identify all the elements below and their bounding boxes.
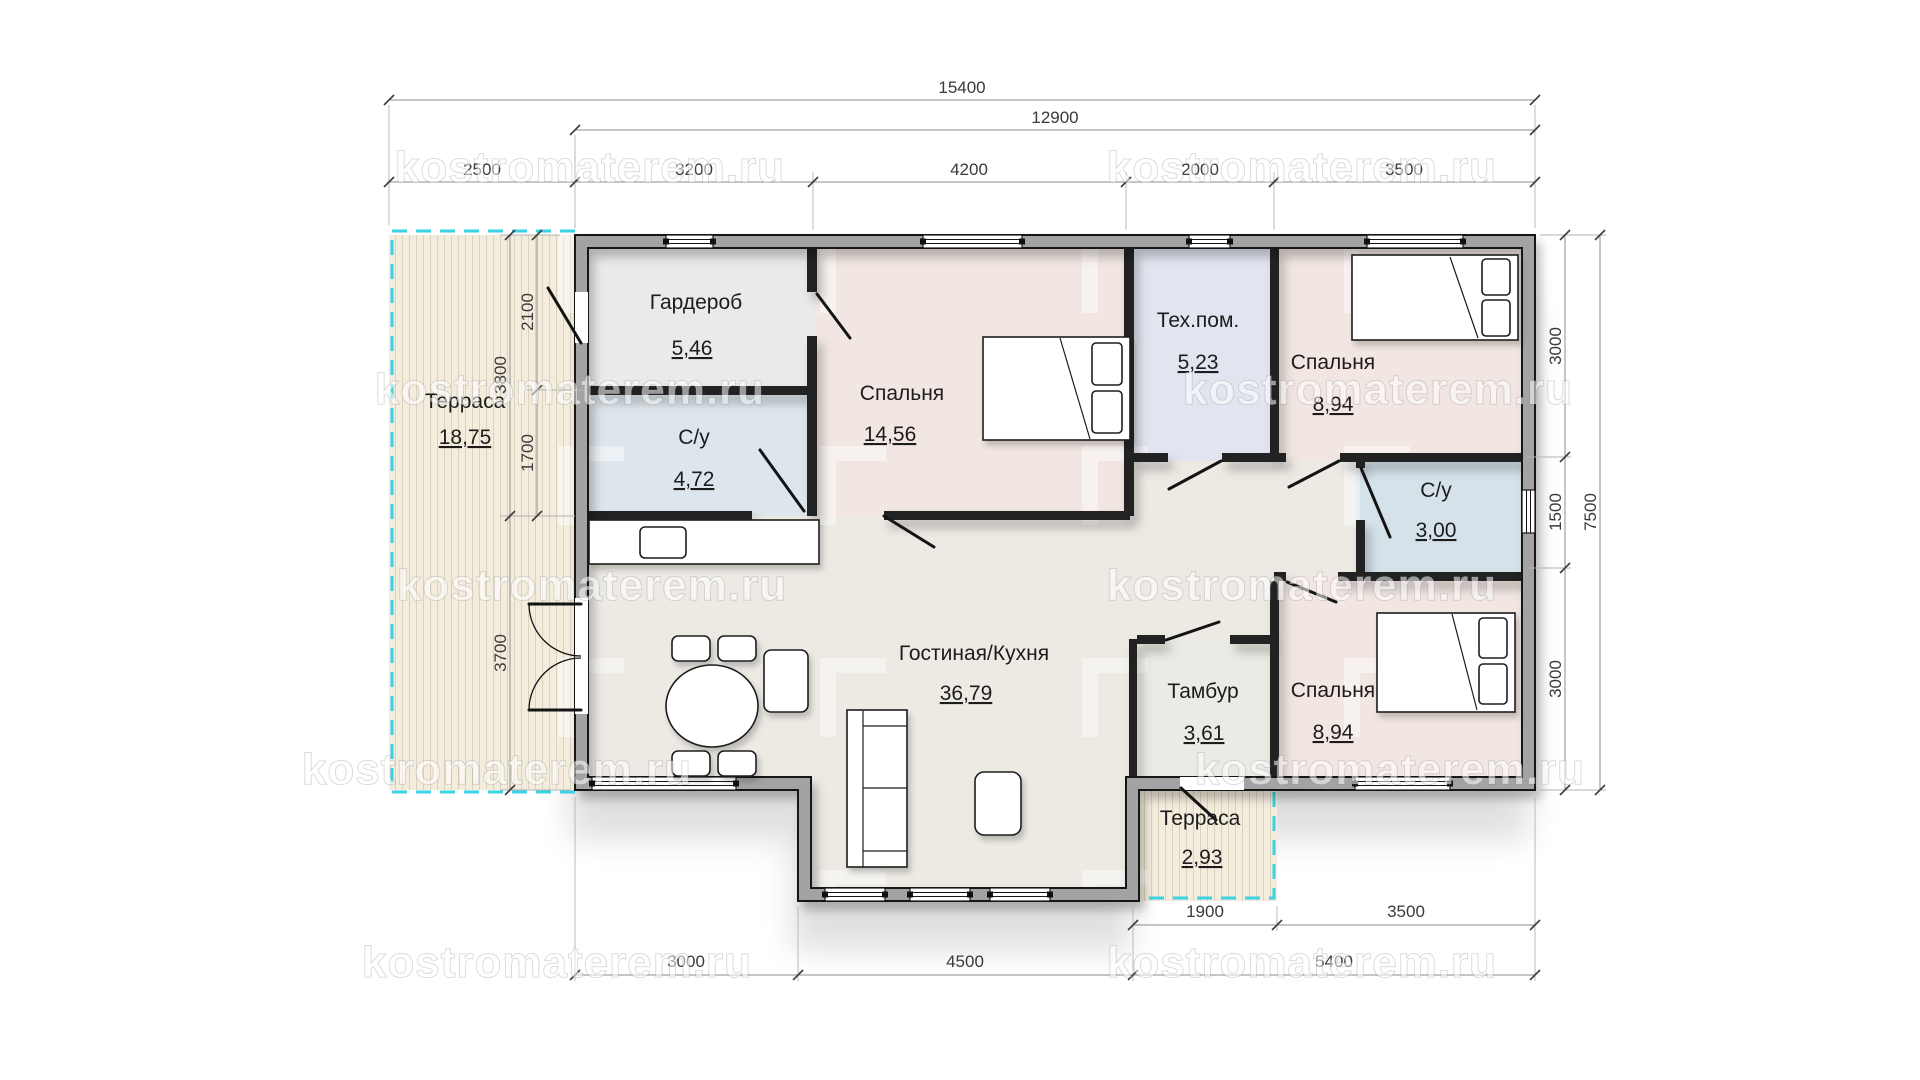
- dim-top-total: 15400: [384, 78, 1540, 105]
- svg-text:3500: 3500: [1387, 902, 1425, 921]
- svg-text:1900: 1900: [1186, 902, 1224, 921]
- svg-text:7500: 7500: [1581, 493, 1600, 531]
- watermark-text: kostromaterem.ru: [395, 143, 785, 192]
- dim-top-inner: 12900: [570, 108, 1540, 135]
- room-area: 5,46: [672, 337, 713, 360]
- wall-wardrobe-bedroom1-b: [807, 336, 817, 516]
- window-bath2: [1522, 490, 1535, 533]
- dim-bottom-sub: 1900 3500: [1128, 902, 1540, 930]
- svg-text:2100: 2100: [518, 293, 537, 331]
- room-area: 4,72: [674, 468, 715, 491]
- watermark-text: kostromaterem.ru: [1107, 938, 1497, 987]
- room-name: Спальня: [1291, 679, 1375, 702]
- wall-tech-hall-b: [1222, 453, 1274, 462]
- wall-tambour-top-a: [1137, 635, 1165, 644]
- window-living-bay-1: [825, 888, 885, 901]
- window-wardrobe: [666, 235, 713, 248]
- dim-right-chain: 3000 1500 3000: [1546, 230, 1570, 795]
- watermark-text: kostromaterem.ru: [1107, 561, 1497, 610]
- watermark-text: kostromaterem.ru: [1183, 365, 1573, 414]
- room-name: Тамбур: [1167, 680, 1238, 703]
- room-name: Гардероб: [650, 291, 742, 314]
- wall-tambour-top-b: [1230, 635, 1270, 644]
- watermark-text: kostromaterem.ru: [375, 365, 765, 414]
- wall-bath1-hall: [588, 511, 752, 520]
- bed-bedroom3: [1377, 613, 1515, 712]
- room-name: Тех.пом.: [1157, 309, 1240, 332]
- side-table: [764, 650, 808, 712]
- window-tech-room: [1189, 235, 1230, 248]
- svg-text:12900: 12900: [1031, 108, 1078, 127]
- wall-bedroom2-hall-a: [1274, 453, 1286, 462]
- watermark-text: kostromaterem.ru: [1195, 745, 1585, 794]
- wall-tambour-left: [1129, 639, 1137, 777]
- room-area: 8,94: [1313, 721, 1354, 744]
- watermark-text: kostromaterem.ru: [302, 745, 692, 794]
- sofa: [847, 710, 907, 867]
- bed-bedroom1: [983, 337, 1130, 440]
- svg-text:3000: 3000: [1546, 327, 1565, 365]
- svg-text:1500: 1500: [1546, 493, 1565, 531]
- room-area: 36,79: [940, 682, 993, 705]
- dim-right-total: 7500: [1581, 230, 1605, 795]
- wall-tech-bedroom2: [1270, 248, 1279, 453]
- room-name: Терраса: [1160, 807, 1241, 830]
- coffee-table: [975, 772, 1021, 835]
- room-area: 3,61: [1184, 722, 1225, 745]
- wall-bedroom2-hall-b: [1340, 453, 1522, 462]
- floor-plan-canvas: Терраса 18,75 Гардероб 5,46 С/у 4,72 Спа…: [0, 0, 1920, 1080]
- wall-tech-hall-a: [1134, 453, 1168, 462]
- svg-text:4500: 4500: [946, 952, 984, 971]
- room-area: 3,00: [1416, 519, 1457, 542]
- window-living-bay-3: [990, 888, 1050, 901]
- window-bedroom2: [1367, 235, 1463, 248]
- watermark-text: kostromaterem.ru: [397, 561, 787, 610]
- svg-text:15400: 15400: [938, 78, 985, 97]
- wall-wardrobe-bedroom1-a: [807, 248, 817, 292]
- bed-bedroom2: [1352, 255, 1518, 340]
- window-living-bay-2: [910, 888, 970, 901]
- svg-text:4200: 4200: [950, 160, 988, 179]
- watermark-text: kostromaterem.ru: [1107, 143, 1497, 192]
- room-area: 14,56: [864, 423, 917, 446]
- room-name: С/у: [1420, 479, 1452, 502]
- room-area: 18,75: [439, 426, 492, 449]
- room-area: 2,93: [1182, 846, 1223, 869]
- kitchen-counter: [589, 520, 819, 564]
- room-name: Спальня: [860, 382, 944, 405]
- svg-text:3000: 3000: [1546, 660, 1565, 698]
- watermark-text: kostromaterem.ru: [362, 938, 752, 987]
- svg-text:1700: 1700: [518, 434, 537, 472]
- window-bedroom1: [923, 235, 1022, 248]
- svg-text:3700: 3700: [491, 634, 510, 672]
- room-name: Гостиная/Кухня: [899, 642, 1049, 665]
- wall-bedroom1-hall: [884, 511, 1130, 520]
- room-name: С/у: [678, 426, 710, 449]
